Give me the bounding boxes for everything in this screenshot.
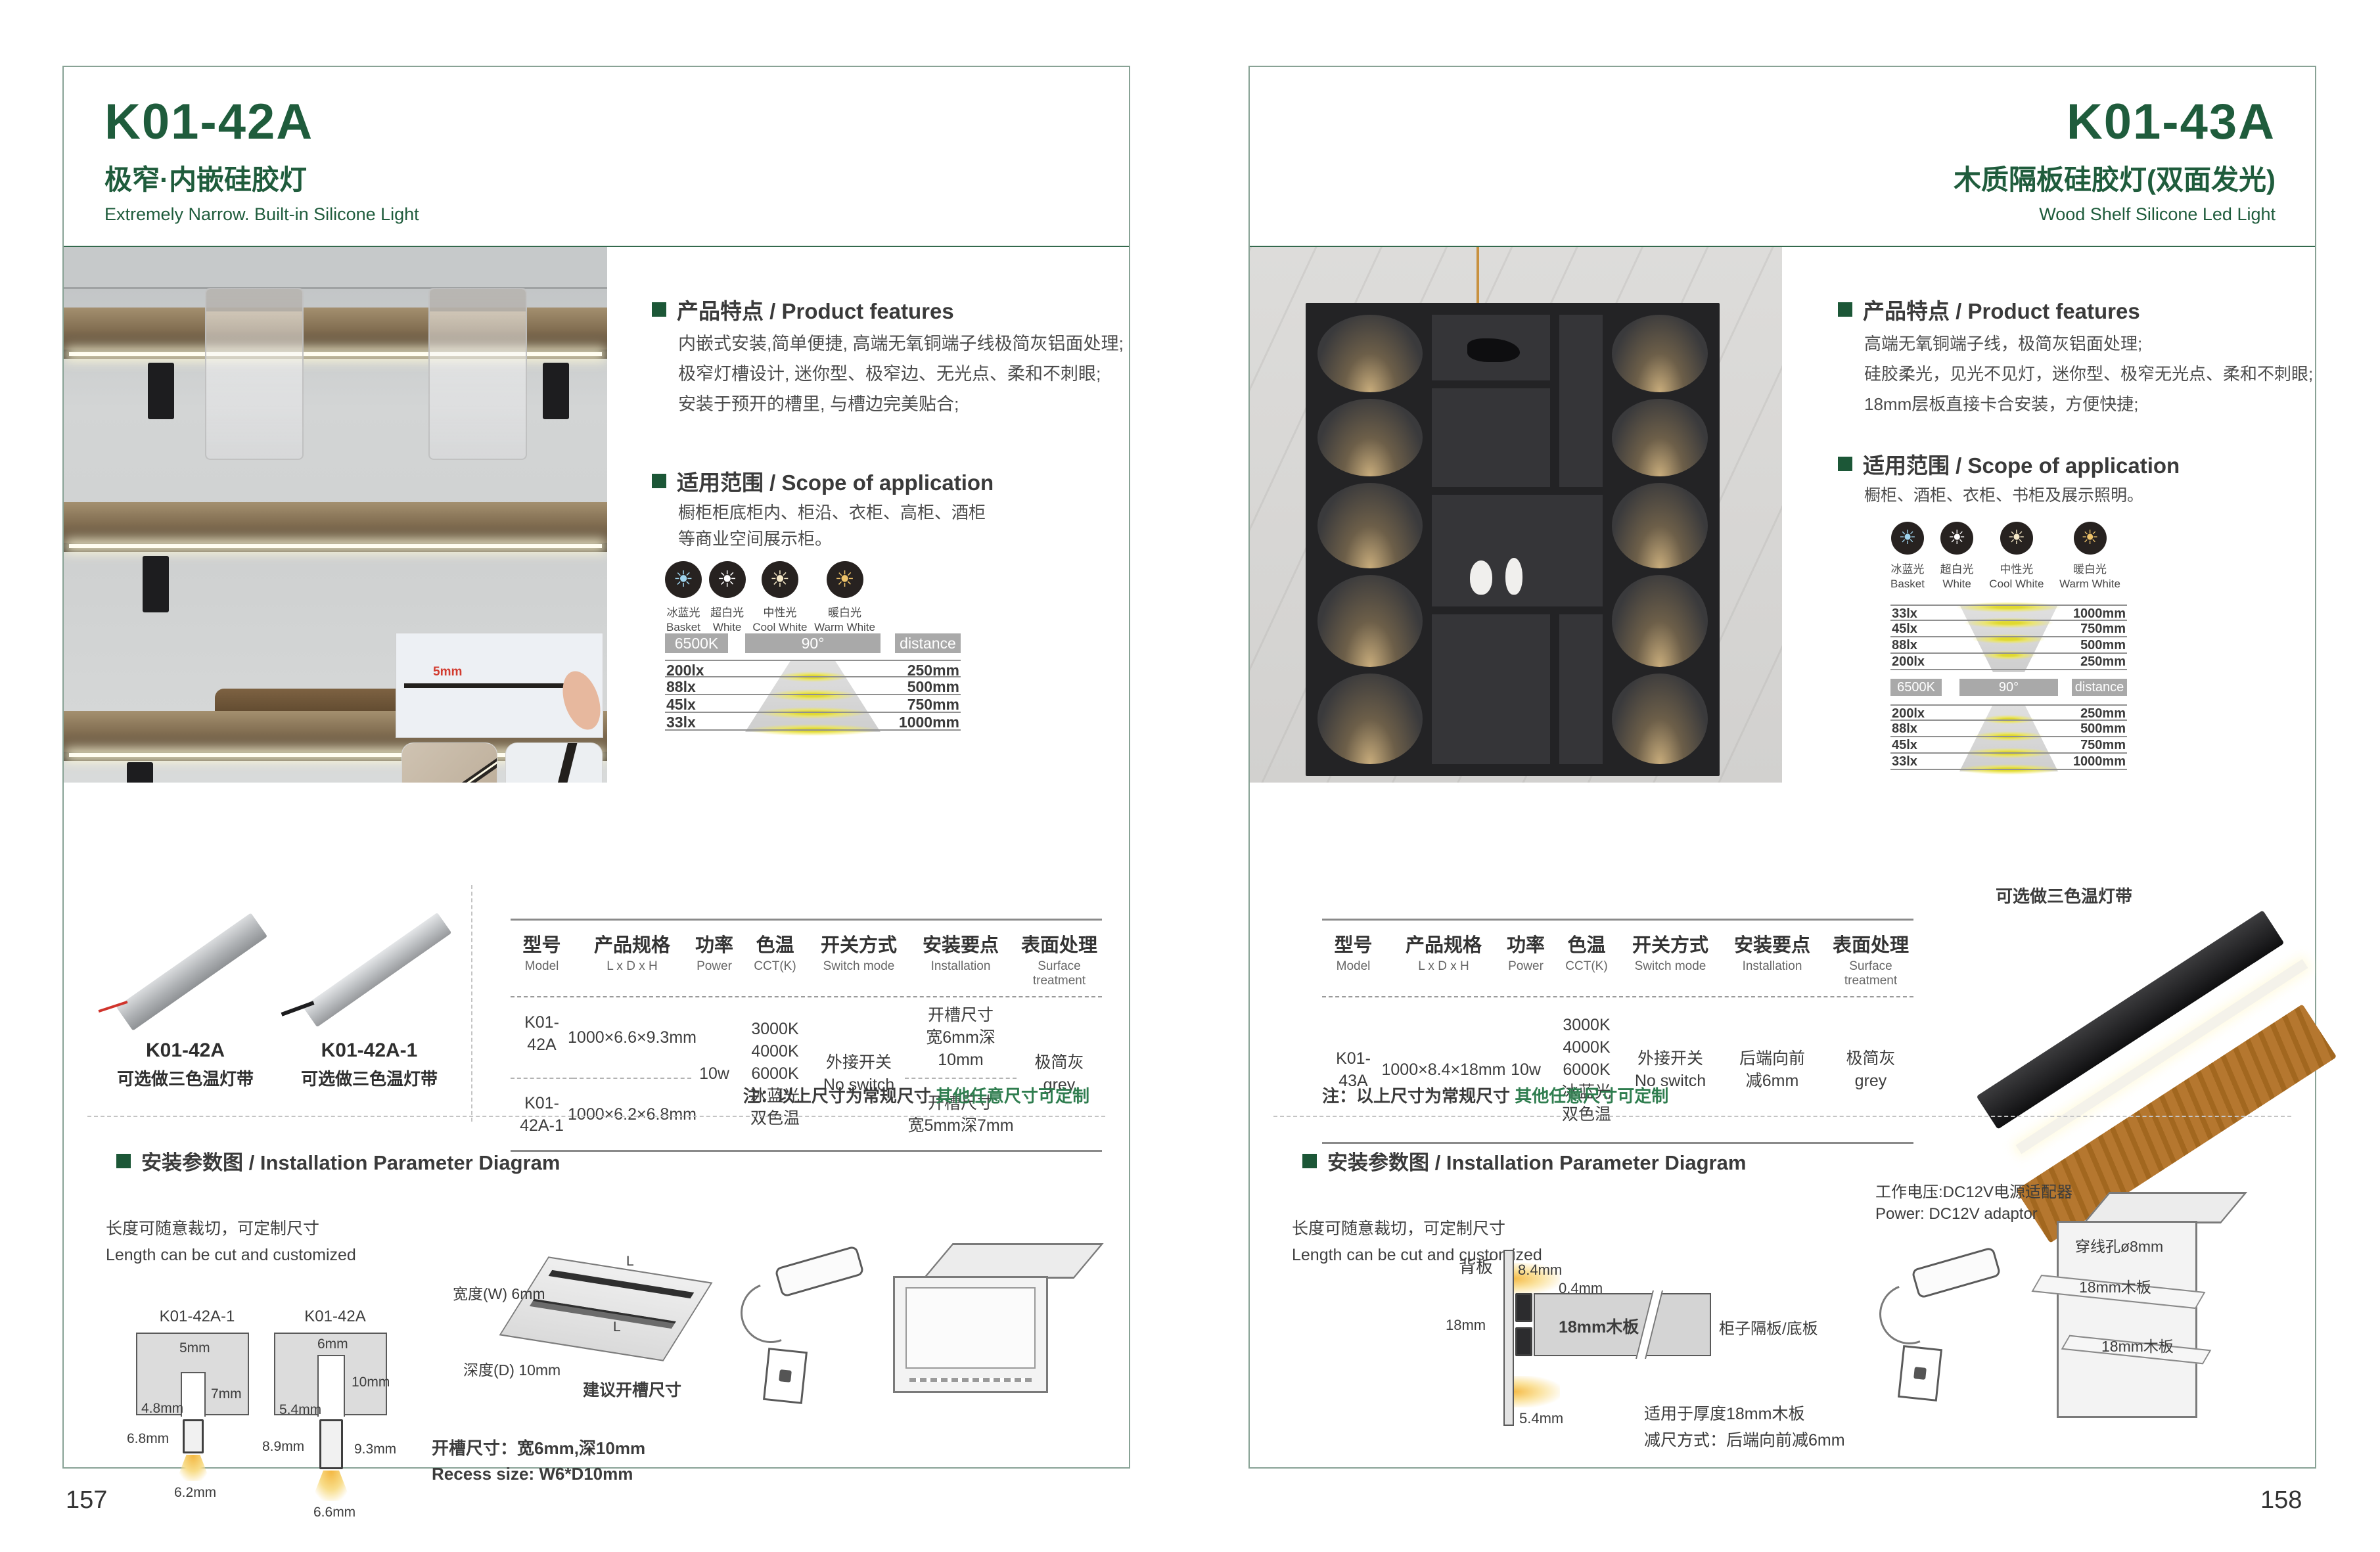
iso-board (499, 1256, 713, 1361)
feature-line: 极窄灯槽设计, 迷你型、极窄边、无光点、柔和不刺眼; (678, 359, 1124, 389)
dim-height: 6.8mm (127, 1431, 169, 1447)
col-header: 功率 (691, 930, 737, 957)
dim-5-4: 5.4mm (1519, 1410, 1563, 1427)
cell-model: K01-43A (1322, 997, 1385, 1142)
light-glow (311, 1471, 351, 1501)
page-title: K01-42A (104, 97, 419, 147)
product-caption-2: K01-42A-1 可选做三色温灯带 (274, 1039, 465, 1090)
cell-power: 10w (1503, 997, 1549, 1142)
col-header: 表面处理 (1828, 930, 1913, 957)
light-icon-warm-white: ☀ 暖白光 Warm White (814, 561, 875, 634)
distance-rows-bottom: 200lx 250mm 88lx 500mm 45lx 750mm 33lx 1… (1890, 704, 2127, 770)
cabinet-cell (1612, 483, 1708, 568)
wall-socket (763, 1348, 808, 1404)
shelf-bracket (127, 762, 153, 783)
length-label: L (626, 1254, 634, 1269)
page-left: K01-42A 极窄·内嵌硅胶灯 Extremely Narrow. Built… (62, 66, 1130, 1469)
col-header: 型号 (1322, 930, 1385, 957)
distance-row: 200lx 250mm (1890, 704, 2127, 721)
shelf-bracket (543, 363, 569, 419)
dim-depth: 10mm (352, 1375, 390, 1390)
features-section-title: 产品特点 / Product features (1838, 294, 2140, 325)
distance-row: 88lx 500mm (665, 677, 961, 695)
light-color-icons: ☀ 冰蓝光 Basket ☀ 超白光 White ☀ 中性光 Cool Whit… (1890, 522, 2120, 591)
light-glow (176, 1455, 210, 1481)
dim-8-4: 8.4mm (1518, 1262, 1562, 1279)
scope-list: 橱柜、酒柜、衣柜、书柜及展示照明。 (1864, 482, 2143, 509)
suggest-label: 建议开槽尺寸 (583, 1377, 681, 1401)
dim-inner: 5.4mm (279, 1402, 321, 1418)
width-label: 宽度(W) 6mm (453, 1281, 545, 1304)
side-label: 柜子隔板/底板 (1719, 1315, 1818, 1338)
dim-depth: 7mm (211, 1386, 242, 1402)
led-profile-section (183, 1419, 204, 1453)
light-icon-white: ☀ 超白光 White (1940, 522, 1974, 591)
light-icon-ice-blue: ☀ 冰蓝光 Basket (1890, 522, 1925, 591)
col-header: 表面处理 (1017, 930, 1102, 957)
cabinet-cell (1317, 399, 1423, 476)
feature-line: 安装于预开的槽里, 与槽边完美贴合; (678, 389, 1124, 419)
cell-size: 1000×6.6×9.3mm (573, 997, 691, 1078)
page-number-left: 157 (66, 1486, 107, 1515)
strip-profile (404, 683, 564, 688)
scope-line: 橱柜、酒柜、衣柜、书柜及展示照明。 (1864, 482, 2143, 509)
dim-height-left: 8.9mm (262, 1439, 304, 1455)
distance-row: 200lx 250mm (665, 660, 961, 677)
led-strip-2 (69, 544, 602, 548)
thickness-dimension: 5mm (433, 665, 462, 679)
product-caption: 可选做三色温灯带 (1996, 883, 2132, 907)
storage-canister (428, 288, 527, 460)
sun-icon: ☀ (827, 561, 863, 598)
cabinet-top (2083, 1192, 2247, 1223)
cell-model: K01-42A-1 (511, 1078, 573, 1150)
cabinet-cell (1559, 614, 1603, 764)
distance-rows-top: 33lx 1000mm 45lx 750mm 88lx 500mm 200lx … (1890, 605, 2127, 670)
light-icon-cool-white: ☀ 中性光 Cool White (752, 561, 807, 634)
dim-0-4: 0.4mm (1559, 1280, 1603, 1297)
strip-profile (545, 742, 578, 783)
cell-install: 后端向前 减6mm (1716, 997, 1828, 1142)
light-icon-ice-blue: ☀ 冰蓝光 Basket (665, 561, 702, 634)
section-bullet-icon (1838, 457, 1852, 471)
power-note-cn: 工作电压:DC12V电源适配器 (1875, 1179, 2072, 1202)
sun-glyph: ☀ (674, 568, 693, 591)
sun-icon: ☀ (665, 561, 702, 598)
fit-note-2: 减尺方式：后端向前减6mm (1644, 1427, 1845, 1451)
dim-top: 5mm (179, 1340, 210, 1356)
distance-bar: distance (2072, 679, 2127, 696)
page-subtitle-en: Extremely Narrow. Built-in Silicone Ligh… (104, 204, 419, 225)
cabinet-cell (1317, 673, 1423, 764)
cell-model: K01-42A (511, 997, 573, 1070)
distance-row: 33lx 1000mm (665, 713, 961, 731)
pendant-wire (1476, 247, 1479, 305)
back-panel-label: 背板 (1459, 1254, 1493, 1278)
led-profile-section (319, 1419, 343, 1469)
figurine (1470, 560, 1492, 595)
hand-strip-inset (505, 742, 603, 783)
page-number-right: 158 (2260, 1486, 2302, 1515)
sun-icon: ☀ (2000, 522, 2033, 555)
board-label: 18mm木板 (1559, 1314, 1639, 1338)
page-left-header: K01-42A 极窄·内嵌硅胶灯 Extremely Narrow. Built… (104, 97, 419, 225)
distance-row: 88lx 500mm (1890, 637, 2127, 654)
distance-row: 45lx 750mm (1890, 737, 2127, 754)
cabinet-front (893, 1276, 1048, 1393)
wall-socket (1898, 1345, 1942, 1402)
distance-row: 33lx 1000mm (1890, 754, 2127, 770)
recess-size-en: Recess size: W6*D10mm (432, 1464, 633, 1484)
aluminium-profile (116, 913, 267, 1030)
cabinet-cell (1612, 315, 1708, 392)
catalog-spread: { "accent_green": "#1f5c3c", "page_left"… (0, 0, 2380, 1552)
led-profile-top (1515, 1293, 1532, 1322)
cabinet-cell (1317, 575, 1423, 667)
wire-hole-label: 穿线孔ø8mm (2075, 1234, 2163, 1256)
col-header: 色温 (737, 930, 813, 957)
product-caption-1: K01-42A 可选做三色温灯带 (90, 1039, 281, 1090)
install-section-title: 安装参数图 / Installation Parameter Diagram (1302, 1146, 1746, 1175)
section-bullet-icon (116, 1154, 131, 1168)
cell-cct: 3000K 4000K 6000K 冰蓝光 双色温 (737, 997, 813, 1150)
light-color-icons: ☀ 冰蓝光 Basket ☀ 超白光 White ☀ 中性光 Cool Whit… (665, 561, 875, 634)
col-header: 产品规格 (1385, 930, 1503, 957)
distance-rows: 200lx 250mm 88lx 500mm 45lx 750mm 33lx 1… (665, 660, 961, 731)
install-section-title: 安装参数图 / Installation Parameter Diagram (116, 1146, 560, 1175)
page-title: K01-43A (1954, 97, 2276, 147)
shelf-label-2: 18mm木板 (2101, 1334, 2174, 1356)
distance-row: 200lx 250mm (1890, 654, 2127, 670)
spec-table-header: 型号Model 产品规格L x D x H 功率Power 色温CCT(K) 开… (1322, 921, 1913, 997)
sun-glyph: ☀ (2081, 528, 2099, 548)
dim-bottom: 6.6mm (313, 1505, 355, 1520)
cabinet-cell (1432, 614, 1550, 764)
recess-groove (548, 1270, 694, 1298)
distance-row: 45lx 750mm (1890, 621, 2127, 637)
aluminium-profile (303, 913, 452, 1028)
cabinet-cell (1612, 673, 1708, 764)
feature-line: 18mm层板直接卡合安装，方便快捷; (1864, 389, 2313, 419)
down-glow (1514, 1376, 1560, 1407)
sun-glyph: ☀ (1899, 528, 1917, 548)
cabinet-opening (905, 1287, 1036, 1369)
distance-illuminance-chart: 6500K 90° distance 200lx 250mm 88lx 500m… (665, 631, 961, 736)
cabinet-cell (1317, 315, 1423, 392)
recess-size-cn: 开槽尺寸：宽6mm,深10mm (432, 1435, 645, 1459)
sun-icon: ☀ (709, 561, 746, 598)
feature-line: 高端无氧铜端子线，极简灰铝面处理; (1864, 329, 2313, 359)
cabinet-cell (1612, 575, 1708, 667)
beam-angle-bar: 90° (1959, 679, 2058, 696)
dim-bottom: 6.2mm (174, 1485, 216, 1501)
scope-line: 橱柜柜底柜内、柜沿、衣柜、高柜、酒柜 (678, 499, 986, 526)
page-subtitle-cn: 木质隔板硅胶灯(双面发光) (1954, 158, 2276, 198)
section-bullet-icon (652, 302, 666, 317)
product-photo-shelves: 5mm (64, 247, 607, 783)
vertical-divider (471, 885, 472, 1122)
cabinet-cell (1612, 399, 1708, 476)
col-header: 安装要点 (905, 930, 1017, 957)
col-header: 产品规格 (573, 930, 691, 957)
section-bullet-icon (1838, 302, 1852, 317)
spec-table-header: 型号Model 产品规格L x D x H 功率Power 色温CCT(K) 开… (511, 921, 1102, 997)
length-label: L (613, 1319, 621, 1335)
sun-glyph: ☀ (835, 568, 854, 591)
page-right-header: K01-43A 木质隔板硅胶灯(双面发光) Wood Shelf Silicon… (1954, 97, 2276, 225)
back-panel (1503, 1250, 1514, 1426)
scope-section-title: 适用范围 / Scope of application (652, 465, 994, 497)
distance-row: 33lx 1000mm (1890, 605, 2127, 621)
sun-glyph: ☀ (770, 568, 790, 591)
recess-slot (317, 1355, 345, 1417)
distance-bar: distance (895, 633, 961, 653)
recess-groove (529, 1299, 675, 1329)
sun-icon: ☀ (762, 561, 798, 598)
spec-table-body: K01-43A 1000×8.4×18mm 10w 3000K 4000K 60… (1322, 997, 1913, 1142)
section-divider (1273, 1116, 2291, 1117)
feature-line: 内嵌式安装,简单便捷, 高端无氧铜端子线极简灰铝面处理; (678, 329, 1124, 359)
ceiling (64, 247, 607, 289)
custom-size-note: 注：以上尺寸为常规尺寸 其他任意尺寸可定制 (1322, 1083, 1668, 1107)
section-bullet-icon (652, 474, 666, 488)
cell-size: 1000×8.4×18mm (1385, 997, 1503, 1142)
distance-row: 88lx 500mm (1890, 721, 2127, 737)
col-header: 功率 (1503, 930, 1549, 957)
page-right: K01-43A 木质隔板硅胶灯(双面发光) Wood Shelf Silicon… (1248, 66, 2316, 1469)
cabinet-cell (1559, 315, 1603, 487)
depth-label: 深度(D) 10mm (463, 1358, 561, 1380)
sun-glyph: ☀ (1948, 528, 1966, 548)
product-photo-cabinet (1250, 247, 1782, 783)
features-list: 高端无氧铜端子线，极简灰铝面处理; 硅胶柔光，见光不见灯，迷你型、极窄无光点、柔… (1864, 329, 2313, 419)
cct-bar: 6500K (1890, 679, 1942, 696)
section-bullet-icon (1302, 1154, 1317, 1168)
cabinet-top (923, 1243, 1103, 1279)
cell-surface: 极简灰 grey (1828, 997, 1913, 1142)
sun-icon: ☀ (1891, 522, 1924, 555)
page-subtitle-en: Wood Shelf Silicone Led Light (1954, 204, 2276, 225)
custom-size-note: 注：以上尺寸为常规尺寸 其他任意尺寸可定制 (743, 1083, 1089, 1107)
cabinet-cell (1432, 388, 1550, 487)
light-icon-warm-white: ☀ 暖白光 Warm White (2059, 522, 2120, 591)
cell-size: 1000×6.2×6.8mm (573, 1078, 691, 1150)
cell-power: 10w (691, 997, 737, 1150)
col-header: 型号 (511, 930, 573, 957)
cut-note: 长度可随意裁切，可定制尺寸 Length can be cut and cust… (106, 1216, 356, 1268)
cell-install: 开槽尺寸 宽6mm深10mm (905, 997, 1017, 1078)
storage-canister (205, 288, 304, 460)
page-subtitle-cn: 极窄·内嵌硅胶灯 (104, 158, 419, 198)
shelf-label-1: 18mm木板 (2079, 1275, 2151, 1297)
display-cabinet (1306, 303, 1720, 776)
feature-line: 硅胶柔光，见光不见灯，迷你型、极窄无光点、柔和不刺眼; (1864, 359, 2313, 389)
hand (556, 666, 607, 735)
sun-icon: ☀ (2074, 522, 2107, 555)
shelf-bracket (148, 363, 174, 419)
recess-slot (181, 1372, 206, 1417)
sun-glyph: ☀ (717, 568, 737, 591)
scope-section-title: 适用范围 / Scope of application (1838, 448, 2180, 480)
scope-list: 橱柜柜底柜内、柜沿、衣柜、高柜、酒柜 等商业空间展示柜。 (678, 499, 986, 552)
figurine (1505, 558, 1522, 595)
shelf-bracket (143, 556, 169, 612)
scope-line: 等商业空间展示柜。 (678, 526, 986, 552)
double-distance-chart: 33lx 1000mm 45lx 750mm 88lx 500mm 200lx … (1890, 605, 2127, 777)
light-icon-white: ☀ 超白光 White (709, 561, 746, 634)
fit-note-1: 适用于厚度18mm木板 (1644, 1401, 1804, 1425)
beam-angle-bar: 90° (745, 633, 881, 653)
spec-table-body: K01-42A K01-42A-1 1000×6.6×9.3mm 1000×6.… (511, 997, 1102, 1150)
wood-detail-inset (401, 742, 497, 783)
distance-row: 45lx 750mm (665, 695, 961, 713)
spec-table: 型号Model 产品规格L x D x H 功率Power 色温CCT(K) 开… (1322, 919, 1913, 1144)
cell-switch: 外接开关 No switch (1624, 997, 1716, 1142)
dim-18: 18mm (1446, 1317, 1486, 1334)
section-divider (87, 1116, 1105, 1117)
cabinet-cell (1317, 483, 1423, 568)
power-note-en: Power: DC12V adaptor (1875, 1205, 2038, 1223)
sun-glyph: ☀ (2007, 528, 2025, 548)
col-header: 安装要点 (1716, 930, 1828, 957)
features-section-title: 产品特点 / Product features (652, 294, 954, 325)
light-icon-cool-white: ☀ 中性光 Cool White (1989, 522, 2044, 591)
cell-cct: 3000K 4000K 6000K 冰蓝光 双色温 (1549, 997, 1624, 1142)
col-header: 开关方式 (813, 930, 905, 957)
led-profile-bottom (1515, 1327, 1532, 1356)
cell-surface: 极简灰 grey (1017, 997, 1102, 1150)
cabinet-led-strip (909, 1378, 1032, 1382)
thinness-inset: 5mm (396, 633, 603, 738)
col-header: 色温 (1549, 930, 1624, 957)
col-header: 开关方式 (1624, 930, 1716, 957)
sun-icon: ☀ (1940, 522, 1973, 555)
dim-top: 6mm (317, 1336, 348, 1352)
dim-inner: 4.8mm (141, 1401, 183, 1417)
cct-bar: 6500K (665, 633, 728, 653)
features-list: 内嵌式安装,简单便捷, 高端无氧铜端子线极简灰铝面处理; 极窄灯槽设计, 迷你型… (678, 329, 1124, 419)
cell-switch: 外接开关 No switch (813, 997, 905, 1150)
dim-height-right: 9.3mm (354, 1442, 396, 1457)
